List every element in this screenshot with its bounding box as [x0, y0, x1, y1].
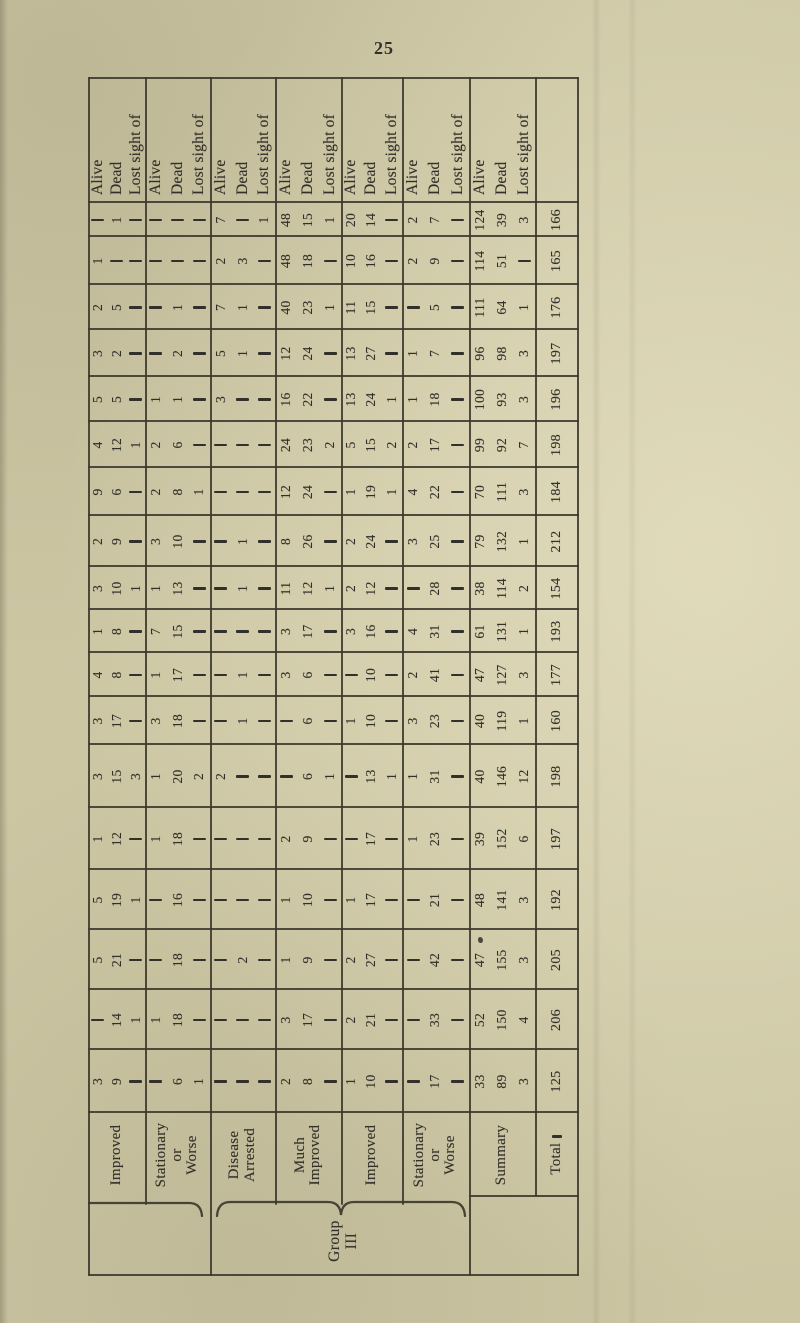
cell-value [447, 870, 469, 930]
table-cell: 471553 [469, 930, 535, 990]
cell-value: 3 [126, 745, 145, 808]
table-cell: 422 [402, 468, 469, 516]
table-cell: 39 [88, 1050, 145, 1113]
cell-value: 1 [88, 237, 107, 285]
cell-value: 1 [145, 653, 167, 697]
nil-dash [193, 260, 206, 262]
table-cell: 166 [535, 203, 579, 237]
table-cell: 1191 [341, 468, 402, 516]
nil-dash [129, 540, 142, 542]
cell-value: 13 [167, 567, 189, 610]
cell-value [447, 697, 469, 745]
table-cell: 1 [210, 653, 275, 697]
cell-value [447, 990, 469, 1050]
nil-dash [214, 720, 227, 722]
cell-value: 114 [469, 237, 491, 285]
cell-value: 1 [402, 745, 424, 808]
nil-dash [149, 306, 162, 308]
column-label: StationaryorWorse [145, 1113, 210, 1197]
table-cell: 18 [88, 610, 145, 653]
table-cell: 55 [88, 377, 145, 422]
nil-dash [258, 491, 271, 493]
nil-dash [214, 838, 227, 840]
table-cell [210, 468, 275, 516]
cell-value: 17 [361, 870, 381, 930]
cell-value [382, 567, 402, 610]
cell-value: 16 [361, 237, 381, 285]
nil-dash [552, 1135, 562, 1137]
cell-value [253, 653, 275, 697]
nil-dash [451, 720, 464, 722]
cell-value: 24 [361, 516, 381, 567]
cell-value: 5 [107, 377, 126, 422]
nil-dash [149, 352, 162, 354]
table-cell: 154 [535, 567, 579, 610]
cell-value [126, 237, 145, 285]
table-cell [210, 610, 275, 653]
nil-dash [345, 838, 358, 840]
cell-value: 18 [424, 377, 446, 422]
cell-value: 3 [145, 516, 167, 567]
cell-value: 12 [297, 567, 319, 610]
cell-value: 64 [491, 285, 513, 330]
nil-dash [214, 674, 227, 676]
cell-value [232, 377, 254, 422]
cell-value: 1 [232, 330, 254, 377]
subheader-label: Dead [424, 76, 446, 200]
cell-value: 1 [513, 610, 535, 653]
nil-dash [280, 775, 293, 777]
cell-value: 52 [469, 990, 491, 1050]
subheader-label: Dead [167, 76, 189, 200]
cell-value [188, 377, 210, 422]
cell-value: 9 [297, 808, 319, 870]
cell-value [253, 870, 275, 930]
nil-dash [236, 444, 249, 446]
nil-dash [129, 491, 142, 493]
nil-dash [129, 352, 142, 354]
cell-value: 23 [297, 422, 319, 468]
nil-dash [385, 674, 398, 676]
table-cell: 29 [88, 516, 145, 567]
table-cell: 112 [88, 808, 145, 870]
table-cell: 1 [145, 285, 210, 330]
table-cell: 3 [210, 377, 275, 422]
cell-value [447, 653, 469, 697]
subheader-alive-dead-lost: AliveDeadLost sight of [210, 76, 275, 200]
table-cell: 118 [145, 808, 210, 870]
nil-dash [193, 630, 206, 632]
cell-value: 1 [253, 203, 275, 237]
table-cell: 117 [145, 653, 210, 697]
cell-value: 17 [297, 610, 319, 653]
nil-dash [129, 838, 142, 840]
total-value: 154 [535, 567, 579, 610]
cell-value: 5 [88, 377, 107, 422]
nil-dash [258, 444, 271, 446]
cell-value [319, 468, 341, 516]
cell-value: 79 [469, 516, 491, 567]
cell-value: 17 [297, 990, 319, 1050]
nil-dash [451, 1019, 464, 1021]
subheader-label: Alive [88, 76, 107, 200]
table-cell: 29 [275, 808, 341, 870]
table-cell: 221 [341, 990, 402, 1050]
cell-value [447, 422, 469, 468]
nil-dash [236, 491, 249, 493]
cell-value: 4 [88, 653, 107, 697]
nil-dash [236, 899, 249, 901]
table-cell: 13241 [341, 377, 402, 422]
cell-value [382, 1050, 402, 1113]
table-cell: 318 [145, 697, 210, 745]
cell-value: 124 [469, 203, 491, 237]
nil-dash [149, 959, 162, 961]
cell-value [210, 808, 232, 870]
nil-dash [91, 219, 104, 221]
cell-value: 41 [424, 653, 446, 697]
cell-value [126, 930, 145, 990]
table-cell: 117 [341, 870, 402, 930]
cell-value: 8 [297, 1050, 319, 1113]
cell-value [188, 285, 210, 330]
cell-value: 1 [126, 567, 145, 610]
nil-dash [193, 540, 206, 542]
table-cell: 431 [402, 610, 469, 653]
nil-dash [214, 540, 227, 542]
cell-value: 1 [126, 870, 145, 930]
cell-value: 19 [361, 468, 381, 516]
table-cell: 205 [535, 930, 579, 990]
nil-dash [236, 398, 249, 400]
nil-dash [193, 1019, 206, 1021]
cell-value: 3 [145, 697, 167, 745]
table-cell: 241 [402, 653, 469, 697]
subheader-alive-dead-lost: AliveDeadLost sight of [88, 76, 145, 200]
total-value: 205 [535, 930, 579, 990]
column-label: Summary [469, 1113, 535, 1197]
cell-value: 1 [382, 468, 402, 516]
cell-value: 2 [319, 422, 341, 468]
subheader-label: Lost sight of [188, 76, 210, 200]
cell-value [341, 745, 361, 808]
cell-value: 6 [107, 468, 126, 516]
cell-value [382, 870, 402, 930]
table-cell: 100933 [469, 377, 535, 422]
cell-value [319, 870, 341, 930]
table-cell: 26 [145, 422, 210, 468]
cell-value [382, 330, 402, 377]
subheader-alive-dead-lost: AliveDeadLost sight of [275, 76, 341, 200]
total-value: 206 [535, 990, 579, 1050]
column-label-line: Summary [494, 1125, 510, 1185]
cell-value [319, 377, 341, 422]
cell-value: 3 [275, 653, 297, 697]
cell-value: 2 [275, 1050, 297, 1113]
nil-dash [110, 260, 123, 262]
subheader-alive-dead-lost: AliveDeadLost sight of [341, 76, 402, 200]
subheader-label: Lost sight of [253, 76, 275, 200]
cell-value: 18 [167, 930, 189, 990]
table-cell: 1 [210, 516, 275, 567]
cell-value: 1 [319, 285, 341, 330]
table-cell: 212 [535, 516, 579, 567]
table-cell: 25 [88, 285, 145, 330]
cell-value: 1 [232, 285, 254, 330]
table-cell: 2014 [341, 203, 402, 237]
nil-dash [129, 306, 142, 308]
table-cell: 33893 [469, 1050, 535, 1113]
table-cell: 317 [275, 610, 341, 653]
nil-dash [258, 899, 271, 901]
total-value: 193 [535, 610, 579, 653]
column-label-line: Improved [364, 1125, 380, 1186]
nil-dash [324, 720, 337, 722]
subheader-label: Lost sight of [382, 76, 402, 200]
nil-dash [236, 775, 249, 777]
table-cell: 11451 [469, 237, 535, 285]
table-cell: 4014612 [469, 745, 535, 808]
cell-value: 27 [361, 930, 381, 990]
cell-value: 2 [107, 330, 126, 377]
table-cell: 6 [275, 697, 341, 745]
cell-value: 2 [402, 422, 424, 468]
nil-dash [385, 630, 398, 632]
table-cell: 198 [535, 745, 579, 808]
cell-value: 9 [107, 1050, 126, 1113]
column-label-line: Worse [185, 1135, 201, 1174]
cell-value [188, 422, 210, 468]
nil-dash [214, 1080, 227, 1082]
cell-value: 17 [424, 1050, 446, 1113]
cell-value: 7 [513, 422, 535, 468]
table-cell: 391526 [469, 808, 535, 870]
table-cell: 4818 [275, 237, 341, 285]
column-label-line: Stationary [154, 1123, 170, 1188]
cell-value [447, 468, 469, 516]
table-cell: 1224 [275, 330, 341, 377]
cell-value: 6 [167, 422, 189, 468]
cell-value: 20 [341, 203, 361, 237]
nil-dash [451, 674, 464, 676]
nil-dash [385, 219, 398, 221]
table-cell: 48151 [275, 203, 341, 237]
nil-dash [324, 260, 337, 262]
cell-value [210, 1050, 232, 1113]
nil-dash [129, 1080, 142, 1082]
table-cell: 16 [145, 870, 210, 930]
cell-value: 7 [145, 610, 167, 653]
table-cell: 19 [275, 930, 341, 990]
cell-value [341, 653, 361, 697]
subheader-label: Dead [107, 76, 126, 200]
cell-value: 2 [210, 237, 232, 285]
cell-value: 89 [491, 1050, 513, 1113]
table-cell: 28 [402, 567, 469, 610]
table-cell: 141 [88, 990, 145, 1050]
cell-value: 15 [167, 610, 189, 653]
cell-value [210, 610, 232, 653]
cell-value [210, 930, 232, 990]
cell-value: 1 [513, 516, 535, 567]
cell-value: 10 [361, 653, 381, 697]
cell-value [382, 237, 402, 285]
cell-value [382, 653, 402, 697]
cell-value: 15 [297, 203, 319, 237]
cell-value: 2 [275, 808, 297, 870]
nil-dash [214, 587, 227, 589]
nil-dash [149, 899, 162, 901]
nil-dash [324, 1019, 337, 1021]
nil-dash [149, 219, 162, 221]
cell-value [167, 237, 189, 285]
cell-value [275, 745, 297, 808]
cell-value [126, 516, 145, 567]
nil-dash [193, 352, 206, 354]
cell-value [188, 610, 210, 653]
cell-value: 3 [88, 1050, 107, 1113]
cell-value: 3 [341, 610, 361, 653]
nil-dash [385, 540, 398, 542]
cell-value: 7 [210, 203, 232, 237]
subheader-alive-dead-lost: AliveDeadLost sight of [402, 76, 469, 200]
total-value: 198 [535, 422, 579, 468]
cell-value: 12 [361, 567, 381, 610]
table-cell: 521504 [469, 990, 535, 1050]
nil-dash [451, 306, 464, 308]
table-cell: 317 [275, 990, 341, 1050]
subheader-alive-dead-lost: AliveDeadLost sight of [145, 76, 210, 200]
cell-value [210, 422, 232, 468]
subheader-label: Dead [361, 76, 381, 200]
group-iii-label: GroupIII [312, 1211, 374, 1271]
cell-value: 70 [469, 468, 491, 516]
nil-dash [385, 838, 398, 840]
cell-value: 47 [469, 930, 491, 990]
cell-value [447, 567, 469, 610]
table-cell: 29 [402, 237, 469, 285]
nil-dash [451, 587, 464, 589]
table-cell: 113 [145, 567, 210, 610]
cell-value: 33 [469, 1050, 491, 1113]
table-cell [210, 990, 275, 1050]
nil-dash [407, 306, 420, 308]
cell-value: 1 [341, 697, 361, 745]
table-cell: 3153 [88, 745, 145, 808]
subheader-label: Alive [469, 76, 491, 200]
nil-dash [451, 219, 464, 221]
table-cell: 17 [402, 330, 469, 377]
cell-value: 31 [424, 745, 446, 808]
nil-dash [280, 720, 293, 722]
table-cell: 2 [210, 745, 275, 808]
cell-value [126, 330, 145, 377]
cell-value: 26 [297, 516, 319, 567]
cell-value: 1 [513, 285, 535, 330]
cell-value: 127 [491, 653, 513, 697]
nil-dash [324, 630, 337, 632]
subheader-label: Alive [402, 76, 424, 200]
cell-value: 1 [232, 653, 254, 697]
nil-dash [214, 491, 227, 493]
cell-value [513, 237, 535, 285]
cell-value: 152 [491, 808, 513, 870]
table-cell: 611311 [469, 610, 535, 653]
cell-value [319, 610, 341, 653]
cell-value: 7 [210, 285, 232, 330]
table-cell: 227 [341, 930, 402, 990]
cell-value [126, 1050, 145, 1113]
table-cell: 1016 [341, 237, 402, 285]
cell-value: 42 [424, 930, 446, 990]
cell-value [382, 930, 402, 990]
cell-value: 38 [469, 567, 491, 610]
cell-value: 2 [88, 285, 107, 330]
table-cell: 96 [88, 468, 145, 516]
cell-value: 1 [341, 1050, 361, 1113]
cell-value: 14 [361, 203, 381, 237]
nil-dash [236, 630, 249, 632]
cell-value [232, 745, 254, 808]
nil-dash [324, 352, 337, 354]
nil-dash [258, 674, 271, 676]
column-label-line: or [170, 1148, 186, 1161]
column-label-line: Improved [308, 1125, 324, 1186]
cell-value: 2 [341, 516, 361, 567]
cell-value: 39 [491, 203, 513, 237]
cell-value: 2 [210, 745, 232, 808]
table-cell: 197 [535, 808, 579, 870]
cell-value: 114 [491, 567, 513, 610]
table-cell: 1224 [275, 468, 341, 516]
column-label-line: or [428, 1148, 444, 1161]
cell-value: 9 [424, 237, 446, 285]
cell-value: 111 [491, 468, 513, 516]
table-cell: 32 [88, 330, 145, 377]
cell-value [382, 285, 402, 330]
nil-dash [407, 1019, 420, 1021]
cell-value [402, 567, 424, 610]
table-cell: 401191 [469, 697, 535, 745]
cell-value [188, 870, 210, 930]
table-cell: 71 [210, 203, 275, 237]
cell-value [402, 990, 424, 1050]
nil-dash [129, 219, 142, 221]
cell-value [188, 808, 210, 870]
cell-value: 24 [297, 468, 319, 516]
nil-dash [324, 398, 337, 400]
cell-value [275, 697, 297, 745]
cell-value [210, 468, 232, 516]
table-cell: 99927 [469, 422, 535, 468]
cell-value: 16 [275, 377, 297, 422]
nil-dash [193, 720, 206, 722]
cell-value: 5 [107, 285, 126, 330]
cell-value: 1 [126, 422, 145, 468]
nil-dash [193, 444, 206, 446]
nil-dash [129, 260, 142, 262]
nil-dash [91, 1019, 104, 1021]
cell-value [188, 930, 210, 990]
table-cell: 17 [402, 1050, 469, 1113]
nil-dash [236, 219, 249, 221]
cell-value [402, 930, 424, 990]
cell-value: 111 [469, 285, 491, 330]
table-cell: 4121 [88, 422, 145, 468]
subheader-label: Alive [145, 76, 167, 200]
cell-value: 3 [513, 1050, 535, 1113]
cell-value [126, 610, 145, 653]
